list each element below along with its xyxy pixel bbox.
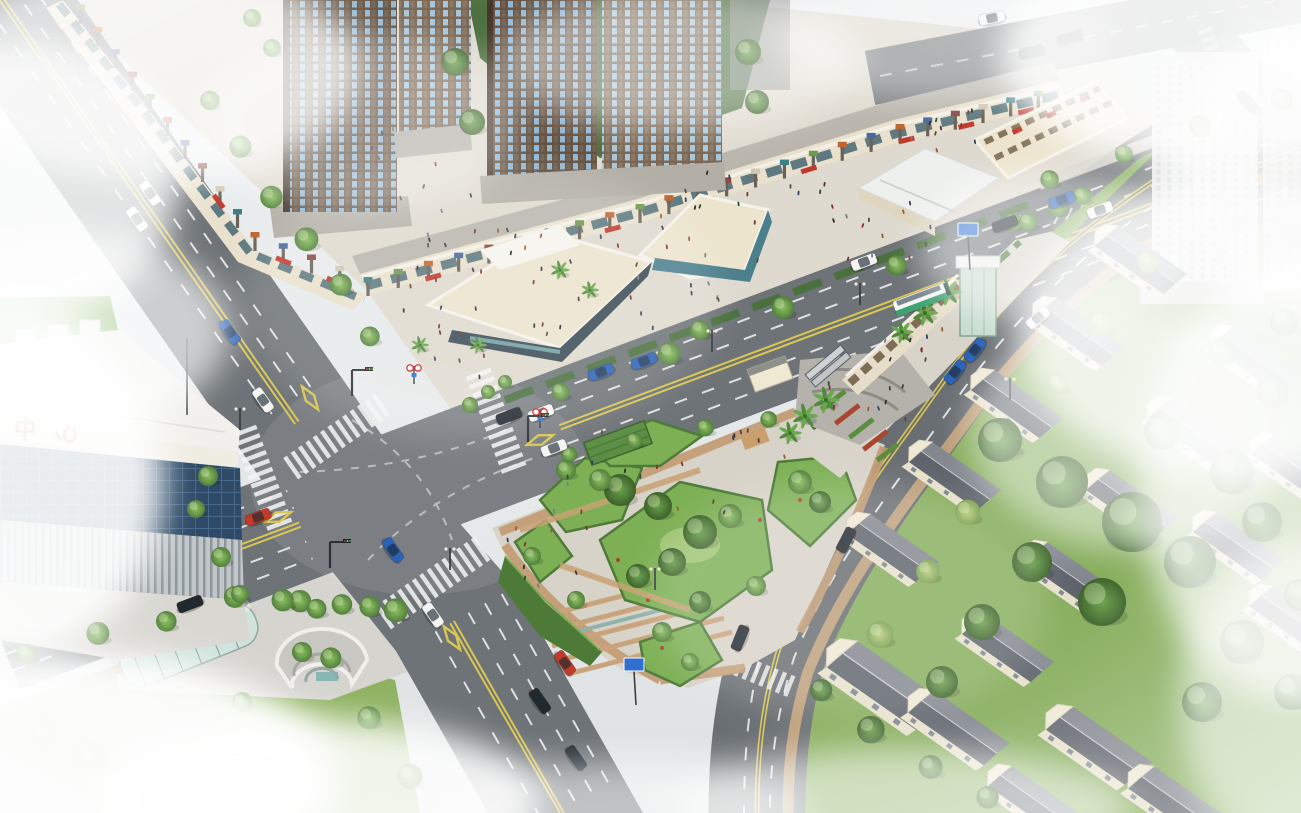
haze-vignette (0, 0, 1301, 813)
scene-svg: 中心 (0, 0, 1301, 813)
aerial-rendering-canvas: 中心 (0, 0, 1301, 813)
